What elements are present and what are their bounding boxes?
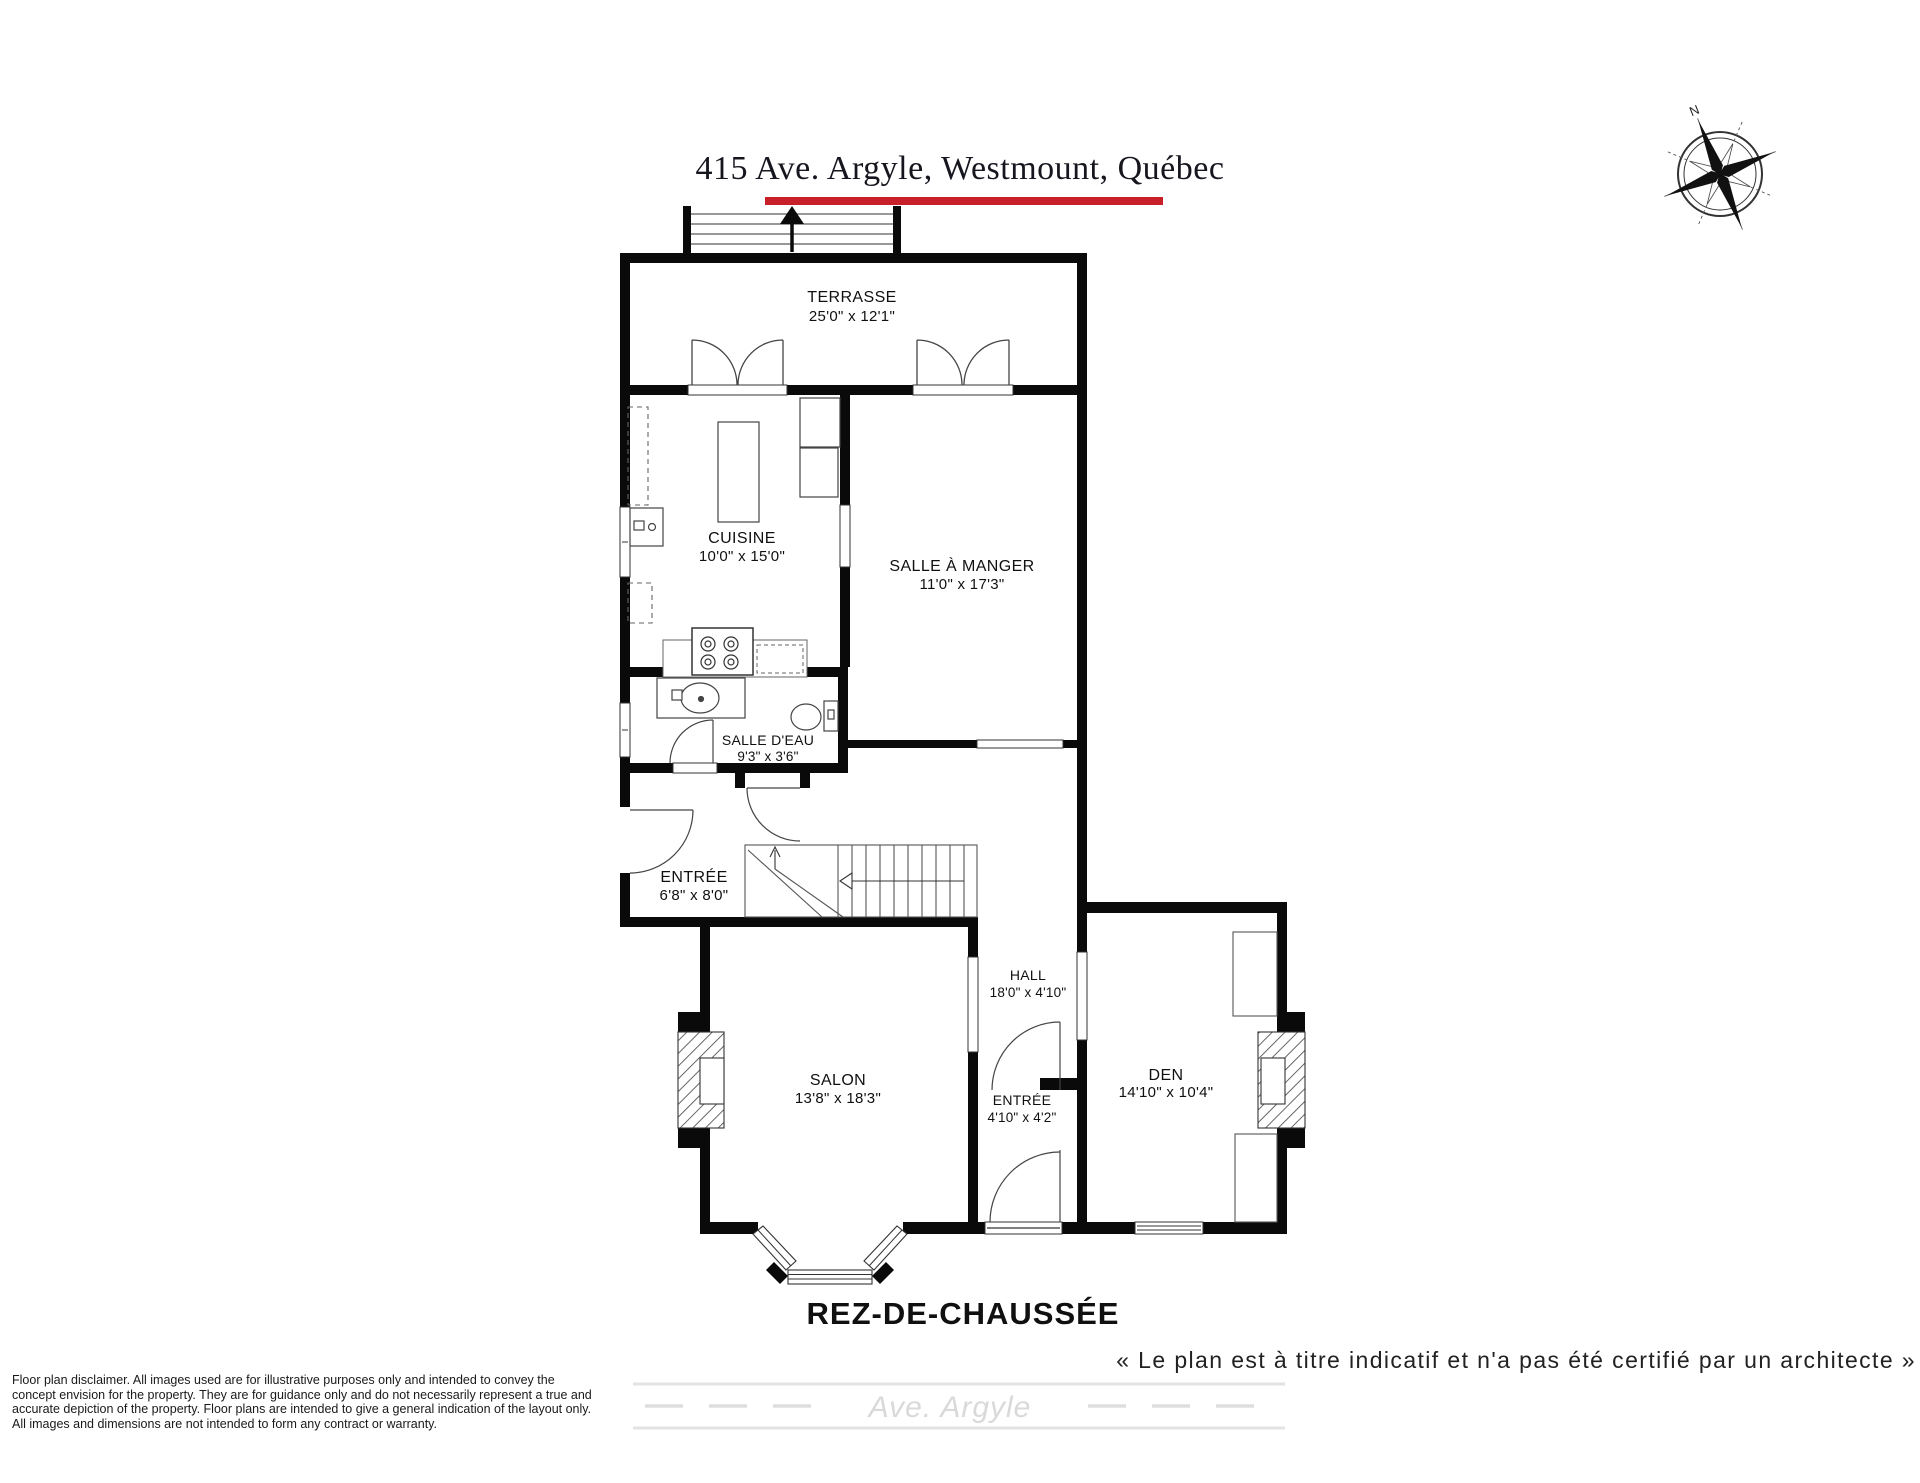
kitchen-island xyxy=(718,422,759,522)
floor-label: REZ-DE-CHAUSSÉE xyxy=(713,1296,1213,1332)
dining-hall-opening xyxy=(977,740,1063,748)
room-label-cuisine: CUISINE xyxy=(708,530,776,547)
disclaimer-line-1: Floor plan disclaimer. All images used a… xyxy=(12,1373,612,1388)
room-dims-entree: 6'8" x 8'0" xyxy=(660,887,729,904)
room-dims-salle-a-manger: 11'0" x 17'3" xyxy=(919,576,1004,593)
room-label-salle-a-manger: SALLE À MANGER xyxy=(889,556,1034,575)
den-fireplace-icon xyxy=(1258,1032,1305,1128)
kitchen-cabinet-top xyxy=(800,398,840,447)
bathroom-fixtures xyxy=(657,678,838,731)
disclaimer-line-2: concept envision for the property. They … xyxy=(12,1388,612,1403)
floor-plan: TERRASSE 25'0" x 12'1" CUISINE 10'0" x 1… xyxy=(0,0,1920,1483)
front-entry-door-arc-icon xyxy=(630,810,693,873)
disclaimer-line-4: All images and dimensions are not intend… xyxy=(12,1417,612,1432)
den-bottom-window xyxy=(1135,1222,1203,1234)
room-label-entree-small: ENTRÉE xyxy=(993,1092,1052,1108)
hall-den-opening xyxy=(1077,952,1087,1040)
terrasse-door-sill-right xyxy=(913,385,1013,395)
floor-plan-page: 415 Ave. Argyle, Westmount, Québec xyxy=(0,0,1920,1483)
room-dims-cuisine: 10'0" x 15'0" xyxy=(699,548,785,565)
front-door-arc-icon xyxy=(987,1150,1060,1228)
compass-rose-icon: N xyxy=(1636,81,1798,252)
terrasse-french-door-right-icon xyxy=(917,340,1009,385)
den-builtin-top xyxy=(1233,932,1277,1016)
disclaimer: Floor plan disclaimer. All images used a… xyxy=(12,1373,612,1431)
room-label-den: DEN xyxy=(1149,1067,1184,1084)
terrasse-stairs-arrow-icon xyxy=(780,206,804,252)
kitchen-fixtures xyxy=(630,398,840,546)
room-label-salon: SALON xyxy=(810,1072,866,1089)
room-dims-entree-small: 4'10" x 4'2" xyxy=(988,1110,1057,1125)
toilet-icon xyxy=(791,704,821,730)
street-name-label: Ave. Argyle xyxy=(867,1391,1032,1424)
entry-hall-door-arc-icon xyxy=(747,788,800,841)
room-dims-hall: 18'0" x 4'10" xyxy=(990,985,1067,1000)
disclaimer-line-3: accurate depiction of the property. Floo… xyxy=(12,1402,612,1417)
room-label-terrasse: TERRASSE xyxy=(807,289,896,306)
hall-salon-opening xyxy=(968,957,978,1052)
room-label-salle-deau: SALLE D'EAU xyxy=(722,732,814,748)
room-dims-salle-deau: 9'3" x 3'6" xyxy=(737,749,798,764)
room-dims-salon: 13'8" x 18'3" xyxy=(795,1090,881,1107)
road: Ave. Argyle xyxy=(633,1384,1285,1428)
terrasse-door-sill-left xyxy=(688,385,787,395)
bathroom-door-sill xyxy=(673,763,717,773)
compass-north-label: N xyxy=(1687,102,1701,119)
bathroom-door-arc-icon xyxy=(670,720,713,763)
room-dims-den: 14'10" x 10'4" xyxy=(1119,1084,1214,1101)
kitchen-cabinet-bottom xyxy=(800,448,838,497)
kitchen-dining-opening xyxy=(840,505,850,567)
architect-quote: « Le plan est à titre indicatif et n'a p… xyxy=(1116,1347,1916,1374)
room-label-hall: HALL xyxy=(1010,967,1046,983)
terrasse-french-door-left-icon xyxy=(692,340,783,385)
bay-window-icon xyxy=(753,1226,907,1284)
salon-fireplace-icon xyxy=(678,1032,724,1128)
den-builtin-bottom xyxy=(1235,1134,1277,1222)
room-dims-terrasse: 25'0" x 12'1" xyxy=(809,308,895,325)
room-label-entree: ENTRÉE xyxy=(660,867,727,886)
stove-icon xyxy=(663,628,807,677)
